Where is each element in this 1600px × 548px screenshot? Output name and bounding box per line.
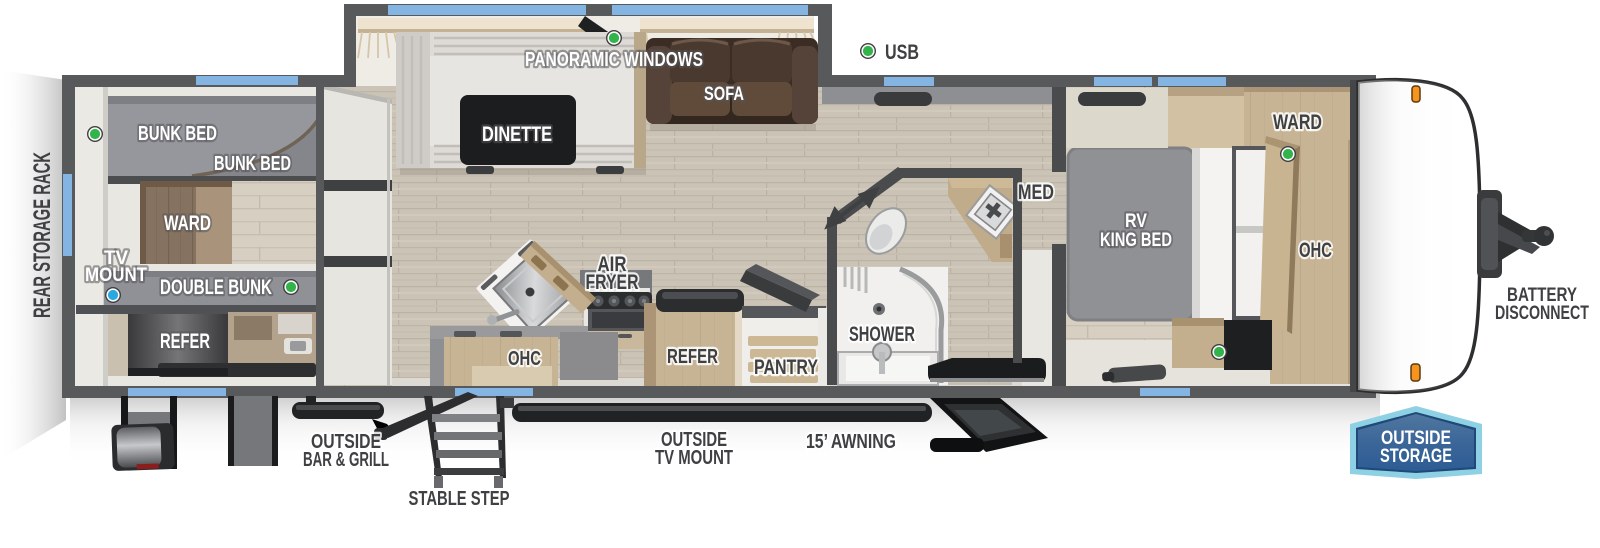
svg-text:OHC: OHC: [508, 348, 541, 370]
svg-text:BUNK BED: BUNK BED: [214, 153, 291, 175]
svg-text:FRYER: FRYER: [586, 271, 639, 294]
svg-text:KING BED: KING BED: [1100, 229, 1172, 251]
svg-text:WARD: WARD: [1273, 111, 1322, 134]
svg-text:OHC: OHC: [1299, 239, 1332, 262]
svg-text:15’ AWNING: 15’ AWNING: [806, 431, 896, 453]
svg-text:TV MOUNT: TV MOUNT: [655, 447, 733, 469]
svg-text:BUNK BED: BUNK BED: [138, 123, 217, 145]
svg-text:MED: MED: [1018, 181, 1054, 204]
svg-text:PANTRY: PANTRY: [754, 356, 818, 379]
svg-text:DOUBLE BUNK: DOUBLE BUNK: [160, 276, 272, 299]
svg-text:STORAGE: STORAGE: [1380, 446, 1452, 467]
svg-text:MOUNT: MOUNT: [85, 265, 147, 286]
svg-text:REFER: REFER: [667, 346, 718, 368]
svg-text:REAR STORAGE RACK: REAR STORAGE RACK: [29, 152, 56, 318]
svg-text:BAR & GRILL: BAR & GRILL: [303, 449, 389, 471]
svg-text:PANORAMIC WINDOWS: PANORAMIC WINDOWS: [525, 49, 703, 71]
svg-text:SOFA: SOFA: [704, 84, 744, 105]
svg-text:REFER: REFER: [160, 330, 210, 353]
svg-text:SHOWER: SHOWER: [849, 323, 915, 346]
svg-text:USB: USB: [885, 41, 919, 64]
svg-text:DINETTE: DINETTE: [482, 123, 552, 146]
svg-text:STABLE STEP: STABLE STEP: [409, 488, 510, 510]
svg-text:DISCONNECT: DISCONNECT: [1495, 303, 1589, 324]
svg-text:WARD: WARD: [164, 212, 211, 235]
